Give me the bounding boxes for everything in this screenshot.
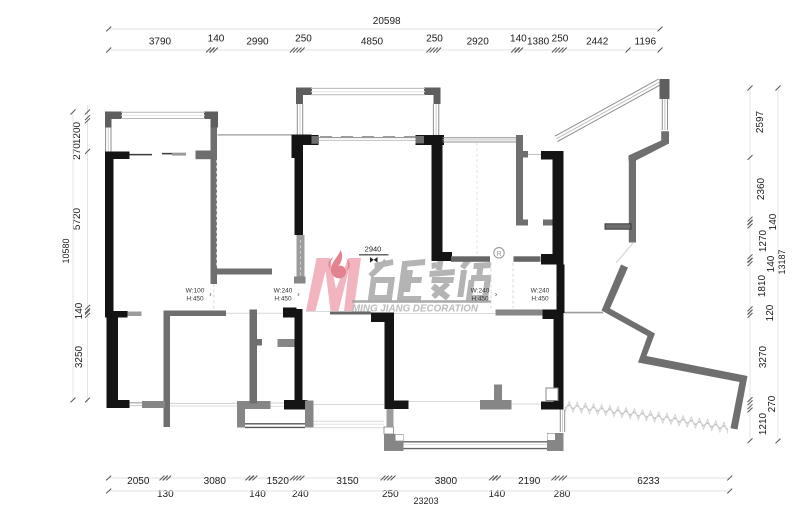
svg-text:W:240: W:240 [471,288,490,295]
svg-text:2940: 2940 [365,245,382,254]
svg-text:3270: 3270 [758,345,769,368]
svg-text:2442: 2442 [586,37,609,48]
svg-text:3790: 3790 [149,37,172,48]
svg-text:20598: 20598 [373,16,401,27]
svg-text:4850: 4850 [361,37,384,48]
svg-text:140: 140 [510,34,527,45]
svg-text:H:450: H:450 [186,296,204,303]
svg-text:13187: 13187 [777,249,787,274]
svg-text:140: 140 [208,34,225,45]
svg-text:2190: 2190 [518,476,541,487]
svg-text:250: 250 [552,34,569,45]
svg-text:120: 120 [765,304,776,321]
svg-text:1810: 1810 [757,274,768,297]
svg-text:6233: 6233 [637,476,660,487]
svg-text:1196: 1196 [635,37,657,48]
svg-text:250: 250 [295,34,312,45]
svg-text:3800: 3800 [435,476,458,487]
svg-text:3250: 3250 [74,345,85,368]
svg-text:2050: 2050 [127,476,150,487]
svg-text:H:450: H:450 [471,296,489,303]
svg-text:270: 270 [72,143,83,160]
svg-text:1200: 1200 [72,121,83,144]
svg-text:W:240: W:240 [274,288,293,295]
svg-text:H:450: H:450 [531,296,549,303]
svg-text:1520: 1520 [267,476,290,487]
svg-text:2920: 2920 [467,37,490,48]
svg-text:3080: 3080 [204,476,227,487]
svg-text:270: 270 [767,395,778,412]
svg-text:140: 140 [768,213,779,230]
svg-text:W:240: W:240 [531,288,550,295]
svg-text:R: R [496,251,501,258]
svg-text:2597: 2597 [755,110,766,133]
svg-text:3150: 3150 [336,476,359,487]
svg-text:23203: 23203 [413,496,438,506]
svg-text:140: 140 [766,255,777,272]
svg-text:140: 140 [74,302,85,319]
svg-text:2360: 2360 [756,177,767,200]
svg-text:10580: 10580 [61,238,71,263]
svg-text:H:450: H:450 [274,296,292,303]
svg-text:5720: 5720 [72,207,83,230]
svg-text:1270: 1270 [758,229,769,252]
svg-text:1210: 1210 [758,412,769,435]
svg-text:2990: 2990 [246,37,269,48]
svg-text:250: 250 [426,34,443,45]
svg-text:W:100: W:100 [186,288,205,295]
svg-text:1380: 1380 [527,37,550,48]
